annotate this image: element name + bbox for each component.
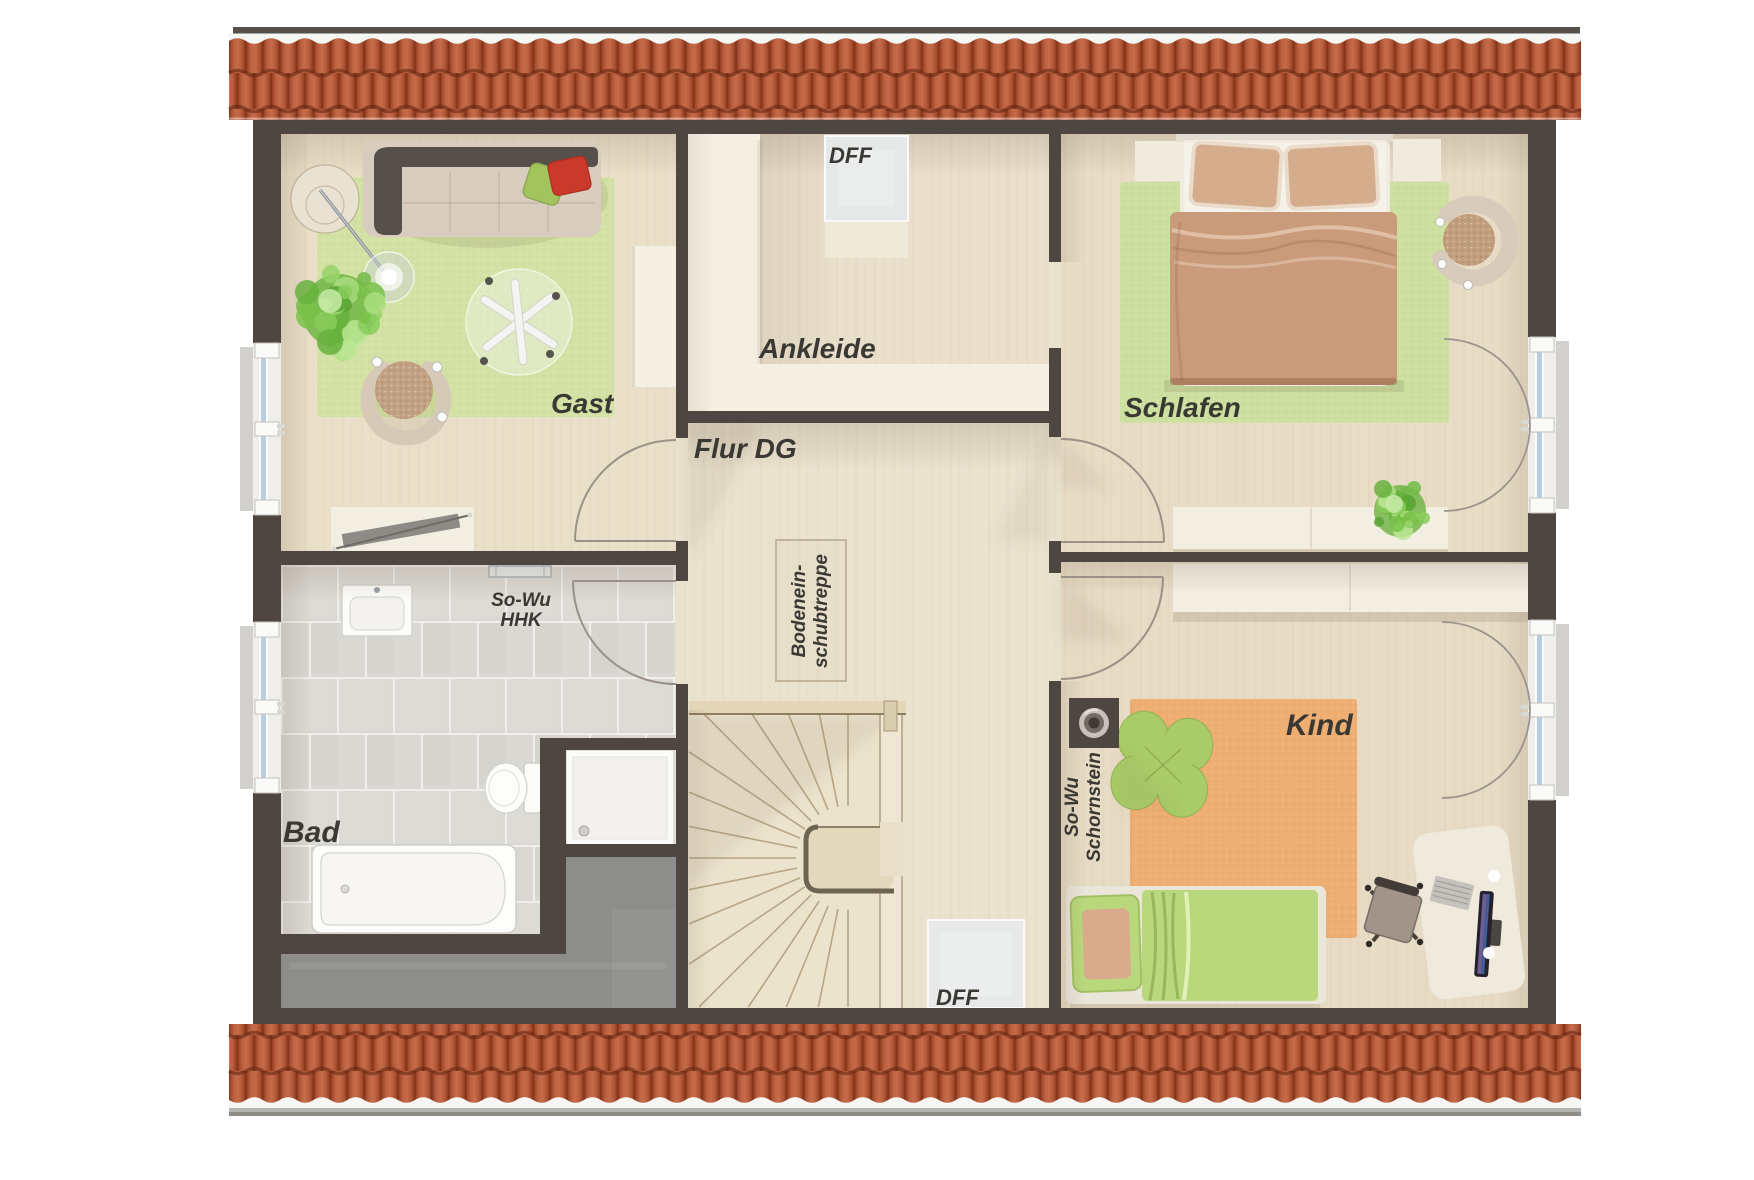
svg-text:HHK: HHK	[500, 610, 542, 631]
svg-text:Kind: Kind	[1286, 709, 1353, 742]
svg-text:Flur DG: Flur DG	[694, 433, 797, 464]
svg-text:Bad: Bad	[283, 816, 340, 849]
svg-text:Ankleide: Ankleide	[758, 333, 876, 364]
svg-text:DFF: DFF	[829, 143, 872, 168]
svg-text:DFF: DFF	[936, 985, 979, 1010]
svg-text:So-Wu: So-Wu	[491, 590, 551, 611]
svg-text:Schornstein: Schornstein	[1084, 752, 1105, 862]
svg-text:So-Wu: So-Wu	[1062, 777, 1083, 837]
svg-text:Gast: Gast	[551, 388, 615, 419]
svg-text:Schlafen: Schlafen	[1124, 392, 1241, 423]
svg-text:schubtreppe: schubtreppe	[811, 554, 832, 668]
svg-text:Bodenein-: Bodenein-	[789, 565, 810, 658]
